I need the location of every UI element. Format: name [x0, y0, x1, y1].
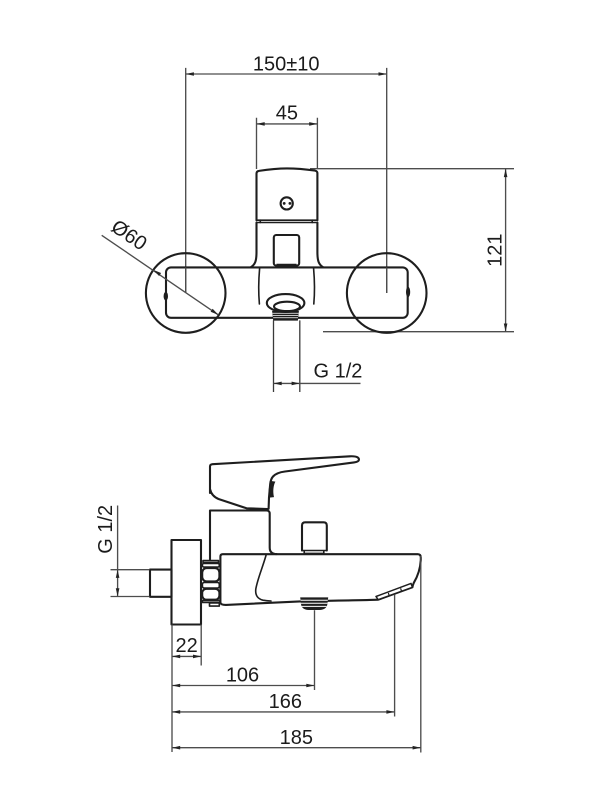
svg-text:45: 45: [276, 103, 298, 125]
svg-text:150±10: 150±10: [253, 54, 320, 76]
svg-text:G 1/2: G 1/2: [314, 361, 363, 383]
svg-text:166: 166: [269, 691, 302, 713]
svg-text:22: 22: [175, 635, 197, 657]
svg-text:121: 121: [485, 234, 507, 267]
svg-text:185: 185: [280, 727, 313, 749]
svg-text:106: 106: [226, 665, 259, 687]
svg-text:G 1/2: G 1/2: [95, 505, 117, 554]
